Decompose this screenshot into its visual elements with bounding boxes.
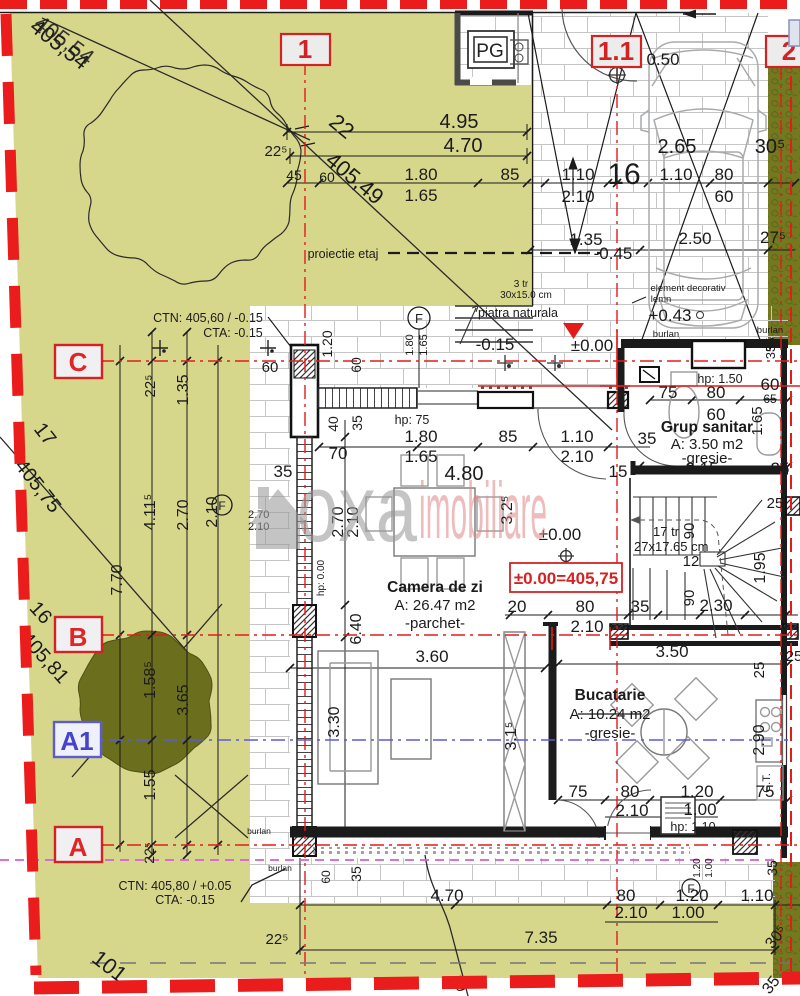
svg-text:CTA: -0.15: CTA: -0.15 xyxy=(203,326,263,340)
svg-text:1.95: 1.95 xyxy=(752,552,769,583)
svg-text:-0.15: -0.15 xyxy=(476,335,515,354)
svg-text:element decorativ: element decorativ xyxy=(651,283,726,294)
svg-text:75: 75 xyxy=(659,383,678,402)
svg-text:35: 35 xyxy=(348,866,364,882)
svg-text:30⁵: 30⁵ xyxy=(755,136,786,158)
svg-text:Bucatarie: Bucatarie xyxy=(575,687,646,704)
svg-text:1.20: 1.20 xyxy=(680,782,713,801)
svg-text:F: F xyxy=(218,499,225,513)
svg-text:1.65: 1.65 xyxy=(749,406,766,435)
svg-text:lemn: lemn xyxy=(651,294,672,305)
svg-text:2.10: 2.10 xyxy=(561,187,594,206)
svg-text:22⁵: 22⁵ xyxy=(141,842,157,863)
svg-text:85: 85 xyxy=(499,427,518,446)
svg-text:PG: PG xyxy=(476,41,503,62)
svg-text:1: 1 xyxy=(298,34,312,64)
svg-text:Grup sanitar: Grup sanitar xyxy=(661,419,753,436)
svg-text:45: 45 xyxy=(286,167,302,183)
svg-text:1.80: 1.80 xyxy=(404,334,416,355)
svg-text:1.10: 1.10 xyxy=(740,886,773,905)
svg-text:1.20: 1.20 xyxy=(319,330,335,357)
svg-text:Camera de zi: Camera de zi xyxy=(387,579,483,596)
svg-text:2.90: 2.90 xyxy=(751,724,768,755)
svg-text:-gresie-: -gresie- xyxy=(585,725,636,742)
svg-text:1.80: 1.80 xyxy=(404,427,437,446)
svg-text:1.65: 1.65 xyxy=(404,186,437,205)
svg-text:60: 60 xyxy=(262,359,279,376)
svg-text:6.40: 6.40 xyxy=(348,613,365,644)
svg-text:17 tr: 17 tr xyxy=(653,524,680,539)
svg-text:40: 40 xyxy=(325,416,341,432)
svg-text:1.10: 1.10 xyxy=(659,165,692,184)
svg-text:60: 60 xyxy=(715,187,734,206)
svg-text:4.11⁵: 4.11⁵ xyxy=(142,494,159,531)
svg-text:2.30: 2.30 xyxy=(699,596,732,615)
svg-text:80: 80 xyxy=(715,165,734,184)
svg-text:25: 25 xyxy=(771,459,790,478)
svg-text:1.20: 1.20 xyxy=(692,858,703,878)
svg-text:1.35: 1.35 xyxy=(175,374,192,405)
svg-text:90: 90 xyxy=(681,590,698,607)
svg-text:1.1: 1.1 xyxy=(598,36,634,66)
svg-text:22⁵: 22⁵ xyxy=(266,931,289,948)
svg-text:hp: 0.00: hp: 0.00 xyxy=(316,559,327,596)
svg-text:burlan: burlan xyxy=(268,863,292,873)
svg-text:3.60: 3.60 xyxy=(415,647,448,666)
svg-text:0.50: 0.50 xyxy=(646,50,679,69)
svg-text:hp: 75: hp: 75 xyxy=(395,413,430,427)
svg-text:-0.45: -0.45 xyxy=(594,244,633,263)
svg-text:A: A xyxy=(69,832,88,862)
svg-text:3.30: 3.30 xyxy=(326,706,343,737)
svg-text:22⁵: 22⁵ xyxy=(265,143,288,160)
svg-text:C: C xyxy=(69,347,88,377)
svg-text:A: 26.47 m2: A: 26.47 m2 xyxy=(395,597,476,614)
svg-text:+0.43: +0.43 xyxy=(648,306,691,325)
svg-text:22⁵: 22⁵ xyxy=(142,375,159,398)
svg-text:2.70: 2.70 xyxy=(175,499,192,530)
svg-text:80: 80 xyxy=(621,782,640,801)
svg-text:oxa: oxa xyxy=(297,455,417,562)
svg-text:1.55: 1.55 xyxy=(142,769,159,800)
svg-text:2.10: 2.10 xyxy=(615,801,648,820)
svg-text:imobiliare: imobiliare xyxy=(419,466,547,555)
svg-text:1.00: 1.00 xyxy=(683,800,716,819)
svg-text:3.65: 3.65 xyxy=(175,684,192,715)
svg-text:35: 35 xyxy=(274,462,293,481)
svg-text:60: 60 xyxy=(319,870,333,884)
svg-text:80: 80 xyxy=(576,597,595,616)
svg-text:piatra naturala: piatra naturala xyxy=(478,306,558,320)
svg-text:25: 25 xyxy=(786,648,800,665)
svg-text:35: 35 xyxy=(763,345,778,359)
svg-text:35: 35 xyxy=(349,415,365,431)
svg-text:25: 25 xyxy=(767,495,784,512)
svg-text:75: 75 xyxy=(569,782,588,801)
svg-text:1.80: 1.80 xyxy=(404,165,437,184)
svg-text:35: 35 xyxy=(638,429,657,448)
svg-text:16: 16 xyxy=(607,158,640,191)
svg-text:2.50: 2.50 xyxy=(678,229,711,248)
svg-text:1.58⁵: 1.58⁵ xyxy=(142,661,159,699)
svg-text:65: 65 xyxy=(763,392,777,406)
svg-text:2.15: 2.15 xyxy=(685,459,718,478)
svg-text:27x17.65 cm: 27x17.65 cm xyxy=(634,539,708,554)
svg-text:85: 85 xyxy=(501,165,520,184)
svg-text:2.10: 2.10 xyxy=(614,903,647,922)
svg-text:1.65: 1.65 xyxy=(418,334,430,355)
svg-text:1.10: 1.10 xyxy=(560,427,593,446)
svg-text:7.35: 7.35 xyxy=(524,928,557,947)
svg-text:12: 12 xyxy=(683,553,700,570)
svg-text:75: 75 xyxy=(756,782,775,801)
svg-text:4.95: 4.95 xyxy=(440,111,479,133)
svg-text:2.65: 2.65 xyxy=(658,136,697,158)
svg-text:2.10: 2.10 xyxy=(560,447,593,466)
svg-text:1.00: 1.00 xyxy=(671,903,704,922)
svg-text:burlan: burlan xyxy=(653,329,679,340)
svg-text:proiectie etaj: proiectie etaj xyxy=(308,247,379,261)
svg-text:3.1⁵: 3.1⁵ xyxy=(503,722,520,751)
svg-text:4.70: 4.70 xyxy=(430,886,463,905)
svg-text:15: 15 xyxy=(609,462,628,481)
svg-text:7.70: 7.70 xyxy=(109,564,126,595)
svg-text:30x15.0 cm: 30x15.0 cm xyxy=(500,290,552,301)
svg-text:60: 60 xyxy=(348,357,364,373)
svg-text:1.00: 1.00 xyxy=(704,858,715,878)
svg-text:1.10: 1.10 xyxy=(561,165,594,184)
svg-text:35: 35 xyxy=(764,860,780,876)
svg-text:CTN: 405,60 / -0.15: CTN: 405,60 / -0.15 xyxy=(153,311,263,325)
svg-text:F: F xyxy=(415,311,423,326)
svg-text:±0.00: ±0.00 xyxy=(571,336,613,355)
svg-text:burlan: burlan xyxy=(247,826,271,836)
svg-text:80: 80 xyxy=(707,383,726,402)
svg-text:hp: 1.10: hp: 1.10 xyxy=(670,820,715,834)
svg-text:90: 90 xyxy=(681,523,698,540)
svg-text:CTN: 405,80 / +0.05: CTN: 405,80 / +0.05 xyxy=(119,879,232,893)
svg-text:20: 20 xyxy=(508,597,527,616)
svg-text:F: F xyxy=(687,882,694,896)
svg-text:3.50: 3.50 xyxy=(655,642,688,661)
svg-text:±0.00=405,75: ±0.00=405,75 xyxy=(514,569,618,588)
svg-text:CTA: -0.15: CTA: -0.15 xyxy=(155,893,215,907)
svg-text:burlan: burlan xyxy=(757,325,783,336)
svg-text:A1: A1 xyxy=(60,726,93,756)
svg-text:25: 25 xyxy=(751,662,768,679)
svg-text:-parchet-: -parchet- xyxy=(405,615,465,632)
svg-text:3 tr: 3 tr xyxy=(514,279,529,290)
svg-text:35: 35 xyxy=(631,597,650,616)
svg-text:2.10: 2.10 xyxy=(570,617,603,636)
svg-text:4.70: 4.70 xyxy=(444,135,483,157)
svg-text:27⁵: 27⁵ xyxy=(760,228,786,247)
svg-text:B: B xyxy=(69,622,88,652)
